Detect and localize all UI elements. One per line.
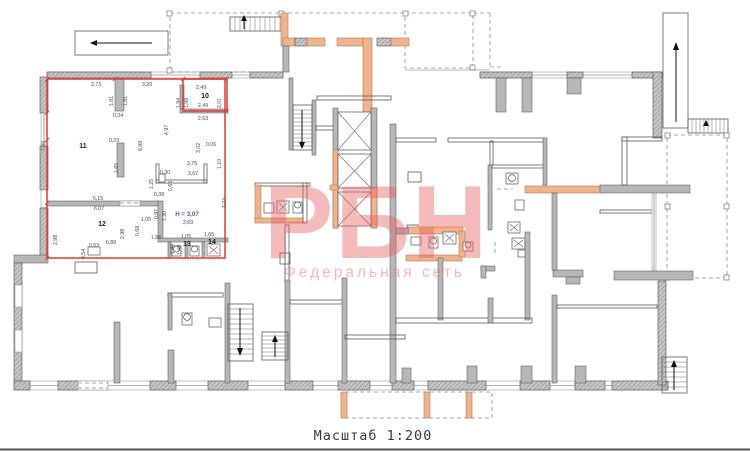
wall: [377, 38, 391, 46]
terrace-post: [167, 68, 172, 73]
dimension-label: 2,98: [120, 229, 126, 239]
stair-arrow-head: [241, 15, 247, 21]
sheet-frame-line: [0, 449, 750, 451]
wall: [290, 300, 345, 304]
dimension-label: 1,65: [204, 232, 214, 238]
dimension-label: 1,81: [109, 96, 115, 106]
wall: [158, 238, 228, 242]
dimension-label: 3,20: [142, 82, 152, 88]
canopy-edge: [473, 13, 503, 67]
dimension-label: 1,10: [217, 159, 223, 169]
pier: [467, 366, 477, 383]
wall: [428, 381, 486, 390]
dimension-label: 1,05: [141, 217, 151, 223]
room-number: 12: [98, 221, 106, 228]
dimension-label: 0,33: [109, 138, 119, 144]
wall: [552, 193, 557, 270]
canopy: [405, 13, 473, 68]
watermark-subtitle: Федеральная сеть: [284, 264, 465, 281]
wall: [567, 72, 583, 78]
dimension-label: 3,24: [222, 198, 228, 208]
accent-wall: [525, 186, 600, 193]
toilet-bowl: [192, 246, 198, 252]
dimension-label: 1,25: [149, 179, 155, 189]
ramp-arrow-head: [90, 40, 97, 46]
sink: [515, 200, 524, 210]
terrace-post: [724, 204, 729, 209]
terrace: [667, 135, 727, 278]
wall: [200, 72, 232, 78]
wall: [488, 298, 493, 323]
wall: [289, 78, 293, 150]
dimension-label: 2,49: [196, 85, 206, 91]
pier: [521, 366, 532, 383]
dimension-label: 6,99: [138, 141, 144, 151]
pier: [496, 78, 506, 112]
ceiling-height-note: H = 3,07: [175, 211, 199, 218]
floor-plan-page: 3,733,202,491,941,982,012,492,631,811,81…: [0, 0, 750, 452]
wall: [168, 350, 174, 383]
stair-treads: [235, 17, 280, 31]
wall: [295, 38, 307, 46]
wall-niche: [75, 262, 97, 273]
room-number: 13: [183, 241, 191, 248]
dimension-label: 6,07: [94, 206, 104, 212]
wall: [600, 210, 653, 213]
dimension-label: 1,44: [170, 244, 176, 254]
canopy-post: [470, 11, 475, 16]
dimension-label: 1,40: [177, 245, 183, 255]
terrace-post: [167, 11, 172, 16]
wall: [58, 381, 80, 390]
doorway: [120, 201, 140, 206]
dimension-label: 1,86: [151, 235, 161, 241]
dimension-label: 3,75: [187, 161, 197, 167]
wall: [47, 72, 151, 78]
accent-wall: [307, 38, 325, 46]
dimension-label: 2,63: [198, 116, 208, 122]
stair-arrow-head: [237, 348, 243, 356]
wall: [396, 318, 532, 323]
wall: [168, 293, 223, 297]
room-number: 11: [79, 143, 87, 150]
wall: [14, 381, 30, 390]
wall: [614, 271, 693, 280]
pier: [402, 368, 411, 383]
dimension-label: 1,98: [184, 98, 190, 108]
window: [41, 190, 47, 208]
toilet-bowl: [184, 314, 191, 321]
wall: [552, 295, 557, 383]
porch-post: [424, 392, 430, 418]
terrace-post: [665, 133, 670, 138]
dimension-label: 2,49: [198, 103, 208, 109]
wall: [283, 46, 289, 72]
wall: [342, 278, 347, 383]
accent-wall: [337, 38, 363, 46]
wall: [202, 242, 205, 258]
dimension-label: 7,00: [41, 141, 47, 151]
wall: [600, 185, 690, 193]
porch-post: [466, 392, 472, 418]
dimension-label: 1,30: [162, 211, 168, 221]
ramp-arrow-head: [673, 42, 679, 50]
wall: [543, 138, 547, 185]
doorway: [78, 381, 108, 390]
wall: [14, 255, 48, 263]
wall: [250, 72, 283, 78]
window: [15, 285, 22, 307]
dimension-label: 3,73: [91, 82, 101, 88]
toilet-bowl: [509, 175, 516, 182]
wall: [480, 72, 532, 78]
room-number: 14: [208, 239, 216, 246]
dimension-label: 0,30: [160, 170, 170, 176]
dimension-label: 3,02: [196, 143, 202, 153]
dimension-label: 6,88: [106, 240, 116, 246]
accent-wall: [255, 185, 261, 222]
dimension-label: 0,53: [89, 243, 99, 249]
dimension-label: 4,97: [164, 125, 170, 135]
wall: [622, 137, 627, 185]
dimension-label: 3,67: [188, 171, 198, 177]
watermark: РБН Федеральная сеть: [264, 165, 489, 281]
dimension-label: 0,54: [81, 249, 87, 259]
accent-wall: [283, 38, 295, 46]
wall: [525, 232, 530, 320]
wall: [312, 100, 316, 155]
window: [15, 330, 22, 352]
dimension-label: 2,01: [217, 98, 223, 108]
terrace-post: [724, 133, 729, 138]
wall: [285, 280, 290, 383]
wall: [448, 138, 544, 142]
wall: [653, 72, 662, 138]
dimension-label: 3,69: [183, 220, 193, 226]
dimension-label: 0,06: [206, 142, 216, 148]
dimension-label: 0,68: [135, 226, 141, 236]
pier: [567, 78, 581, 94]
dimension-label: 1,05: [181, 234, 191, 240]
wall: [490, 141, 493, 165]
wall: [396, 138, 436, 142]
terrace: [170, 13, 283, 72]
wall: [225, 283, 230, 383]
terrace-post: [724, 275, 729, 280]
wall: [317, 96, 391, 100]
dimension-label: 1,94: [176, 98, 182, 108]
dimension-label: 0,65: [168, 181, 174, 191]
dimension-label: 1,81: [123, 96, 129, 106]
wall: [114, 322, 120, 383]
stair-arrow-head: [299, 142, 305, 149]
dimension-labels: 3,733,202,491,941,982,012,492,631,811,81…: [41, 82, 228, 259]
porch-post: [341, 392, 347, 418]
canopy-post: [470, 65, 475, 70]
pier: [522, 78, 532, 112]
wall: [168, 293, 172, 330]
accent-wall: [391, 38, 409, 46]
wall: [557, 305, 657, 308]
wall: [14, 263, 22, 383]
sink: [209, 318, 221, 327]
terrace-post: [665, 204, 670, 209]
dimension-label: 6,15: [93, 196, 103, 202]
dimension-label: 0,97: [154, 209, 160, 219]
stair-arrow-head: [671, 360, 677, 367]
dimension-label: 2,98: [53, 235, 59, 245]
wall: [492, 165, 545, 168]
dimension-label: 0,34: [113, 113, 123, 119]
floor-plan-drawing: 3,733,202,491,941,982,012,492,631,811,81…: [0, 0, 750, 452]
pier: [575, 366, 586, 383]
wall: [553, 270, 583, 277]
dimension-label: 1,65: [114, 163, 120, 173]
room-number: 10: [201, 93, 209, 100]
scale-caption: Масштаб 1:200: [314, 428, 433, 444]
canopy-post: [403, 11, 408, 16]
dimension-label: 0,38: [154, 192, 164, 198]
wall: [566, 277, 580, 284]
